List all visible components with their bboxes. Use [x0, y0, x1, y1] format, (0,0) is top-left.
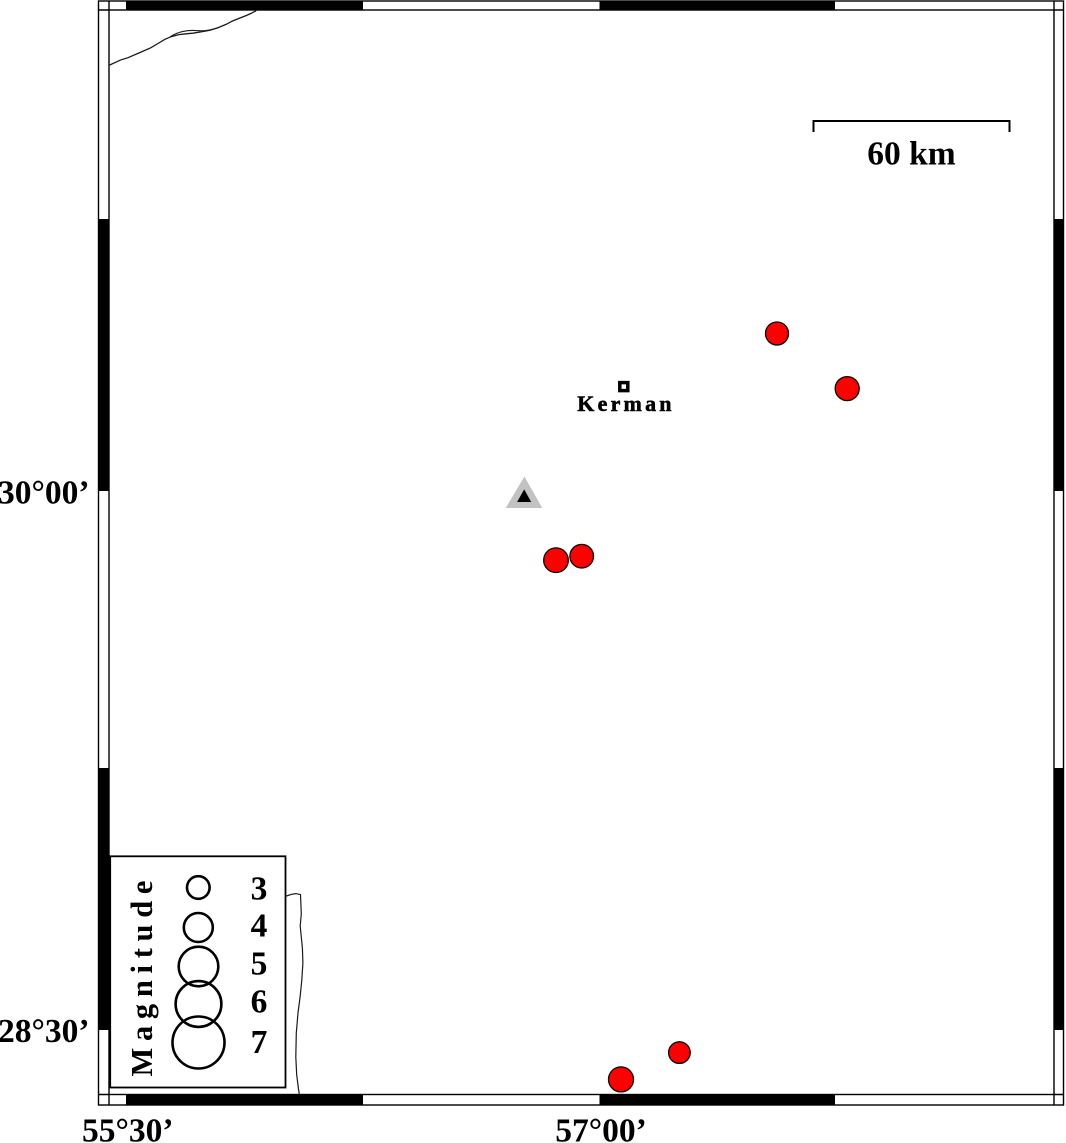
svg-text:5: 5	[251, 946, 268, 983]
svg-text:4: 4	[251, 908, 268, 945]
svg-text:57°00’: 57°00’	[555, 1113, 647, 1143]
svg-text:55°30’: 55°30’	[82, 1113, 174, 1143]
svg-text:60 km: 60 km	[867, 136, 956, 173]
svg-text:30°00’: 30°00’	[0, 475, 90, 512]
svg-text:6: 6	[251, 984, 268, 1021]
svg-text:7: 7	[251, 1024, 268, 1061]
svg-text:Magnitude: Magnitude	[125, 874, 159, 1077]
svg-text:28°30’: 28°30’	[0, 1013, 90, 1050]
svg-text:3: 3	[251, 871, 268, 908]
svg-text:Kerman: Kerman	[577, 391, 674, 416]
